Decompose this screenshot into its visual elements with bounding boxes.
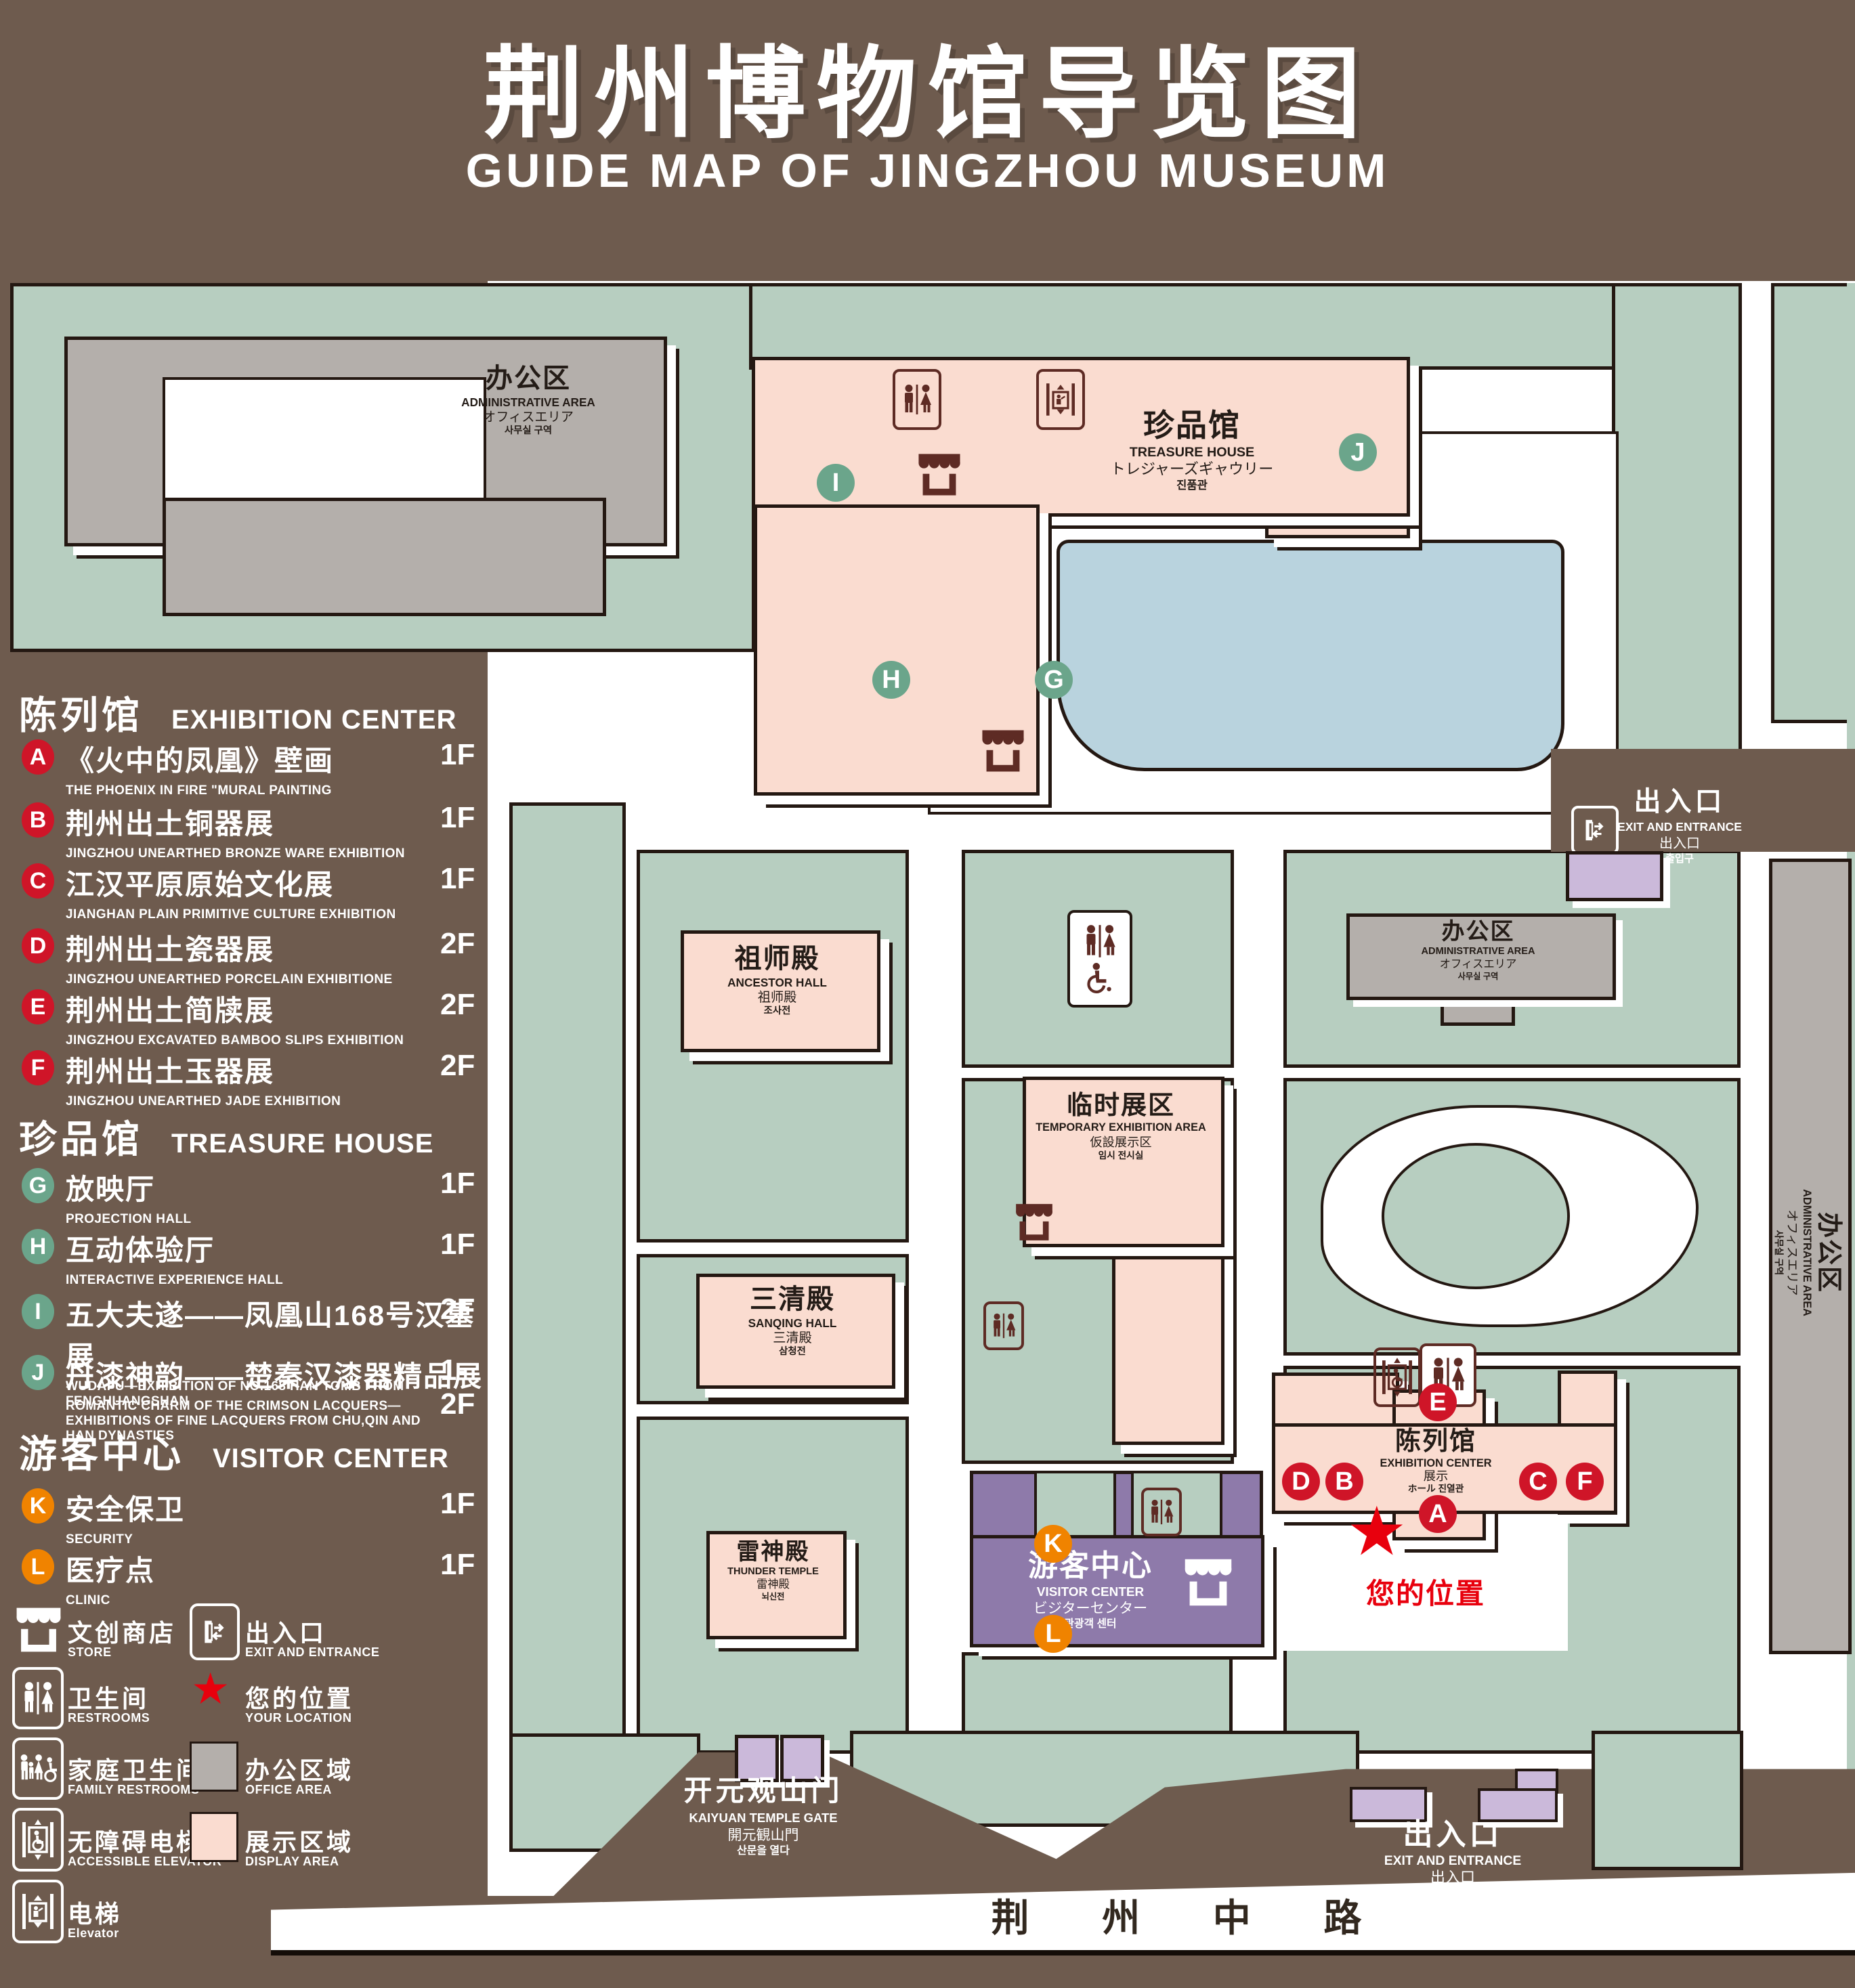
map-marker-G: G (1035, 661, 1073, 699)
legend-item-F: F 荆州出土玉器展 JINGZHOU UNEARTHED JADE EXHIBI… (17, 1049, 491, 1109)
family-restroom-icon (12, 1737, 64, 1800)
legend-marker-I: I (22, 1294, 54, 1329)
admin-east-label: 办公区 ADMINISTRATIVE AREA オフィスエリア 사무실 구역 (1348, 918, 1608, 982)
green-area-east-col (1612, 283, 1742, 818)
treasure-house-label: 珍品馆 TREASURE HOUSE トレジャーズギャウリー 진품관 (1057, 406, 1327, 492)
legend-marker-B: B (22, 802, 54, 838)
thunder-temple-label: 雷神殿 THUNDER TEMPLE 雷神殿 뇌신전 (706, 1538, 840, 1602)
sanqing-hall-label: 三清殿 SANQING HALL 三清殿 삼청전 (696, 1283, 889, 1358)
road-label: 荆 州 中 路 (935, 1888, 1449, 1943)
legend-section-visitor-center: 游客中心VISITOR CENTER (19, 1424, 449, 1479)
store-icon (1013, 1203, 1055, 1245)
legend-section-treasure-house: 珍品馆TREASURE HOUSE (19, 1109, 433, 1164)
legend-item-K: K 安全保卫 SECURITY 1F (17, 1487, 491, 1547)
green-cell-south-east (1592, 1731, 1743, 1870)
map-marker-L: L (1034, 1615, 1072, 1653)
admin-nw-label: 办公区 ADMINISTRATIVE AREA オフィスエリア 사무실 구역 (406, 362, 650, 437)
visitor-center-label: 游客中心 VISITOR CENTER ビジターセンター 관광객 센터 (975, 1548, 1206, 1630)
map-marker-K: K (1034, 1525, 1072, 1563)
map-marker-J: J (1339, 433, 1377, 471)
page-subtitle: GUIDE MAP OF JINGZHOU MUSEUM (0, 144, 1855, 198)
legend-item-H: H 互动体验厅 INTERACTIVE EXPERIENCE HALL 1F (17, 1228, 491, 1288)
elevator-icon (12, 1880, 64, 1943)
temporary-exhibition-label: 临时展区 TEMPORARY EXHIBITION AREA 仮設展示区 임시 … (1019, 1090, 1222, 1161)
map-marker-C: C (1519, 1463, 1557, 1500)
location-star-icon: ★ (191, 1667, 230, 1710)
green-area-ne (1771, 283, 1854, 723)
legend-marker-G: G (22, 1168, 54, 1203)
garden-island (1382, 1143, 1570, 1289)
legend-marker-L: L (22, 1549, 54, 1584)
green-area-west-strip (509, 802, 626, 1750)
legend-marker-H: H (22, 1229, 54, 1264)
map-marker-E: E (1419, 1383, 1457, 1421)
legend-item-G: G 放映厅 PROJECTION HALL 1F (17, 1167, 491, 1227)
map-marker-D: D (1282, 1463, 1320, 1500)
your-location-label: 您的位置 (1344, 1571, 1507, 1612)
kaiyuan-gate-label: 开元观山门 KAIYUAN TEMPLE GATE 開元観山門 산문을 열다 (641, 1773, 885, 1859)
legend-item-D: D 荆州出土瓷器展 JINGZHOU UNEARTHED PORCELAIN E… (17, 927, 491, 987)
legend-item-L: L 医疗点 CLINIC 1F (17, 1548, 491, 1608)
legend-marker-D: D (22, 928, 54, 964)
legend-item-A: A 《火中的凤凰》壁画 THE PHOENIX IN FIRE "MURAL P… (17, 738, 491, 798)
store-icon (979, 729, 1027, 777)
legend-marker-C: C (22, 863, 54, 899)
legend-item-E: E 荆州出土简牍展 JINGZHOU EXCAVATED BAMBOO SLIP… (17, 988, 491, 1048)
restroom-icon (1141, 1488, 1182, 1536)
store-icon (916, 452, 963, 500)
map-marker-F: F (1566, 1463, 1604, 1500)
legend-marker-J: J (22, 1355, 54, 1390)
exit-icon (190, 1603, 240, 1660)
admin-far-east-label: 办公区 ADMINISTRATIVE AREA オフィスエリア 사무실 구역 (1770, 1066, 1844, 1439)
store-icon (1182, 1557, 1235, 1611)
page-title: 荆州博物馆导览图 (0, 12, 1855, 158)
legend-item-B: B 荆州出土铜器展 JINGZHOU UNEARTHED BRONZE WARE… (17, 801, 491, 861)
east-exit-building (1566, 851, 1663, 901)
guide-map-poster: { "title": {"zh": "荆州博物馆导览图", "en": "GUI… (0, 0, 1855, 1983)
ancestor-hall-label: 祖师殿 ANCESTOR HALL 祖师殿 조사전 (681, 943, 874, 1018)
display-area-swatch (190, 1812, 238, 1862)
family-restroom-icon (1067, 910, 1132, 1008)
accessible-elevator-icon (12, 1808, 64, 1872)
legend-marker-F: F (22, 1050, 54, 1085)
legend-item-C: C 江汉平原原始文化展 JIANGHAN PLAIN PRIMITIVE CUL… (17, 862, 491, 922)
your-location-star-icon: ★ (1346, 1498, 1407, 1565)
temporary-exhibition-wing (1112, 1240, 1224, 1445)
store-icon (14, 1606, 64, 1657)
visitor-center-left-arm (970, 1471, 1041, 1545)
visitor-center-right-arm (1217, 1471, 1263, 1545)
lake (1057, 540, 1564, 771)
restroom-icon (12, 1667, 64, 1729)
map-marker-H: H (872, 661, 910, 699)
admin-building-nw-wing (163, 498, 606, 616)
legend-marker-K: K (22, 1488, 54, 1524)
legend-marker-E: E (22, 989, 54, 1024)
legend-marker-A: A (22, 739, 54, 775)
office-area-swatch (190, 1742, 238, 1792)
legend-section-exhibition-center: 陈列馆EXHIBITION CENTER (19, 685, 456, 740)
map-marker-I: I (817, 464, 855, 502)
restroom-icon (983, 1301, 1024, 1350)
accessible-elevator-icon (1373, 1347, 1421, 1407)
map-marker-A: A (1419, 1495, 1457, 1533)
restroom-icon (893, 369, 941, 430)
